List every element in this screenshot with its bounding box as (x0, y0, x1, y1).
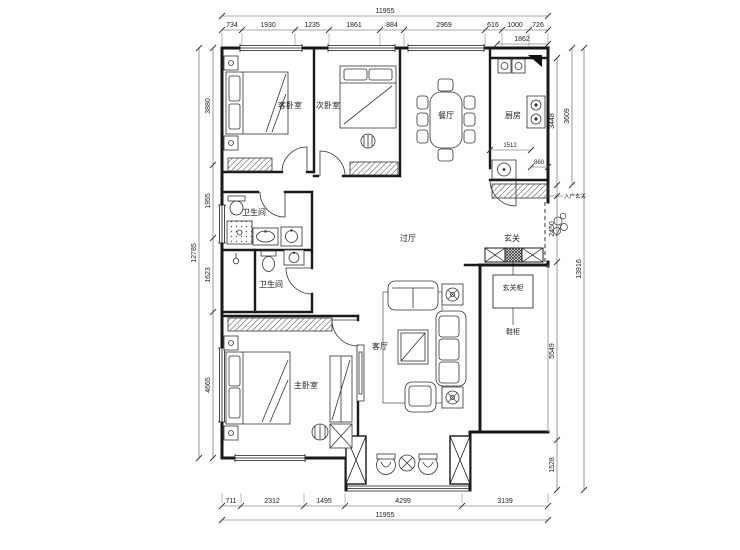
label-living: 客厅 (372, 341, 388, 351)
window-bottom-master (235, 454, 305, 462)
dim-bottom-seg: 4299 (395, 498, 411, 505)
balcony-furniture (377, 454, 438, 475)
armchair (405, 382, 436, 412)
dim-top-sub: 1862 (514, 36, 530, 43)
label-guest-bedroom: 客卧室 (278, 100, 302, 110)
wardrobe-master (330, 356, 352, 422)
wash-tap (233, 253, 239, 264)
washbasin (284, 250, 304, 265)
dining-table (430, 92, 462, 148)
dim-left-seg: 4665 (205, 377, 212, 393)
dim-top-seg: 616 (487, 22, 499, 29)
door-master-bedroom (332, 320, 358, 346)
label-dining: 餐厅 (438, 111, 454, 120)
dining-chair (464, 130, 475, 143)
dim-left-seg: 1623 (205, 267, 212, 283)
dim-top-total: 11955 (376, 8, 395, 15)
window-left-bath (218, 205, 226, 243)
toilet-lower (261, 251, 276, 272)
dining-chair (417, 96, 428, 109)
label-master-bedroom: 主卧室 (294, 380, 318, 390)
floor-plan-page: 11955 734 1930 1235 1861 884 2969 616 10… (0, 0, 740, 550)
side-table-plant (442, 387, 463, 408)
dim-bottom-seg: 711 (225, 498, 236, 505)
dim-top-seg: 734 (226, 22, 238, 29)
nightstand (224, 336, 238, 350)
window-top-guest-bedroom (240, 44, 302, 52)
label-entry-note: 入户玄关 (564, 192, 587, 200)
dim-right-seg: 2450 (549, 221, 556, 237)
dim-bottom-total: 11955 (376, 512, 395, 519)
floor-drain (237, 230, 242, 235)
label-bath-lower: 卫生间 (259, 279, 283, 289)
dim-right-outer: 3609 (564, 108, 571, 124)
loveseat-sofa (388, 281, 438, 310)
master-bedroom-furniture (224, 336, 352, 448)
dim-left-seg: 1955 (205, 193, 212, 209)
label-foyer: 玄关 (504, 233, 520, 243)
dim-top-seg: 1861 (346, 22, 362, 29)
dim-bottom-seg: 2312 (264, 498, 280, 505)
washing-machine-icon (492, 160, 516, 179)
dining-chair (417, 130, 428, 143)
dim-top-seg: 726 (532, 22, 544, 29)
structural-columns (346, 436, 470, 484)
dining-chair (464, 113, 475, 126)
dining-set (417, 79, 475, 161)
dim-left-total: 12785 (191, 243, 198, 263)
radiator-foyer (492, 184, 548, 198)
label-hall: 过厅 (400, 233, 416, 243)
door-guest-bedroom (282, 147, 307, 172)
label-shoe-cabinet: 鞋柜 (506, 327, 520, 336)
sink-left-bowl (498, 59, 511, 73)
wardrobe-second-bedroom (350, 162, 398, 175)
dim-right-seg: 3448 (549, 113, 556, 129)
sink-right-bowl (512, 59, 525, 73)
window-balcony (346, 486, 470, 491)
dim-right-outer: 13916 (576, 259, 583, 279)
dining-chair (438, 149, 453, 161)
washbasin (281, 227, 302, 246)
plant-icon (312, 424, 328, 440)
main-sofa (436, 311, 466, 386)
dim-bottom-seg: 3139 (497, 498, 513, 505)
dim-top-seg: 884 (386, 22, 398, 29)
stool-icon (361, 134, 375, 148)
dim-kitchen: 860 (534, 160, 545, 166)
floor-plan-drawing: 11955 734 1930 1235 1861 884 2969 616 10… (0, 0, 740, 550)
tv-cabinet (357, 345, 364, 401)
stove-icon (527, 96, 545, 128)
balcony-chair (377, 454, 396, 475)
label-bath-upper: 卫生间 (242, 207, 266, 217)
balcony-table (399, 455, 415, 471)
window-left-master (218, 348, 226, 422)
dim-right-seg: 1528 (549, 457, 556, 473)
label-kitchen: 厨房 (505, 110, 521, 120)
dining-chair (417, 113, 428, 126)
label-foyer-cabinet: 玄关柜 (503, 283, 524, 292)
dim-right-seg: 5549 (549, 343, 556, 359)
second-bedroom-furniture (340, 66, 396, 148)
dim-left-seg: 3880 (205, 98, 212, 114)
coffee-table (398, 330, 428, 364)
column-balcony-right (450, 436, 470, 484)
dim-top-seg: 1930 (260, 22, 276, 29)
balcony-chair (419, 454, 438, 475)
dim-bottom-seg: 1495 (316, 498, 332, 505)
cabinet-center-section (505, 248, 522, 262)
dining-chair (438, 79, 453, 91)
wardrobe-guest-bedroom (228, 158, 272, 171)
dim-top-seg: 1000 (507, 22, 523, 29)
wardrobe-master-closet (228, 318, 332, 331)
nightstand (224, 136, 238, 150)
window-top-second-bedroom (328, 44, 395, 52)
dim-top-seg: 1235 (304, 22, 320, 29)
dim-kitchen: 1512 (503, 143, 517, 149)
dim-top-seg: 2969 (436, 22, 452, 29)
washbasin (253, 228, 278, 245)
side-table-plant (442, 284, 463, 305)
label-second-bedroom: 次卧室 (316, 100, 340, 110)
nightstand (224, 56, 238, 70)
door-bath-lower (286, 268, 312, 294)
window-top-dining (408, 44, 484, 52)
cabinet-master-corner (330, 424, 352, 448)
door-second-bedroom (320, 151, 345, 176)
nightstand (224, 426, 238, 440)
dining-chair (464, 96, 475, 109)
